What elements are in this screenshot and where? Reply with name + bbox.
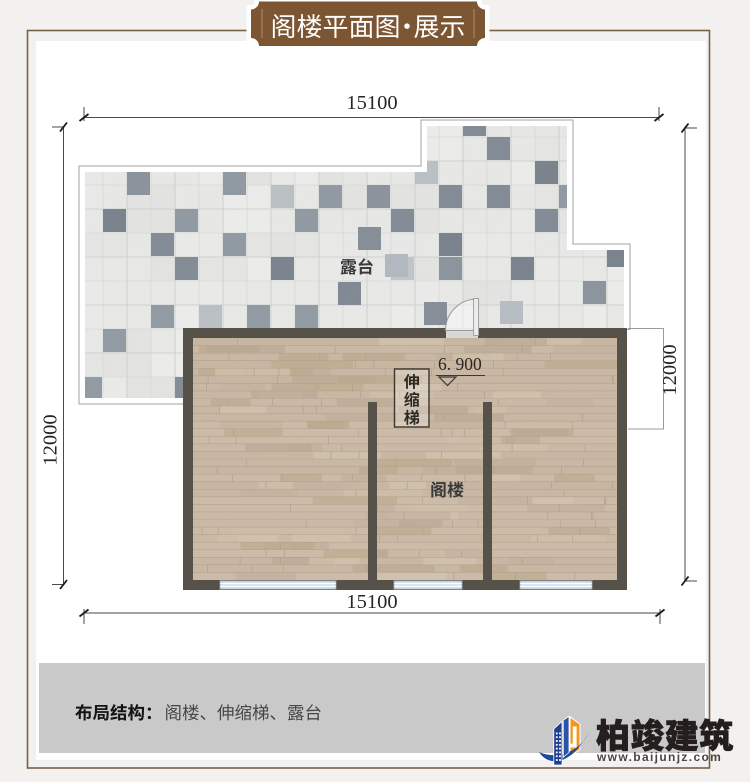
svg-text:12000: 12000	[40, 414, 62, 465]
svg-text:6. 900: 6. 900	[438, 354, 482, 374]
svg-text:www.baijunjz.com: www.baijunjz.com	[596, 750, 722, 764]
svg-text:12000: 12000	[659, 344, 681, 395]
svg-text:15100: 15100	[346, 92, 397, 114]
svg-text:15100: 15100	[346, 591, 397, 613]
